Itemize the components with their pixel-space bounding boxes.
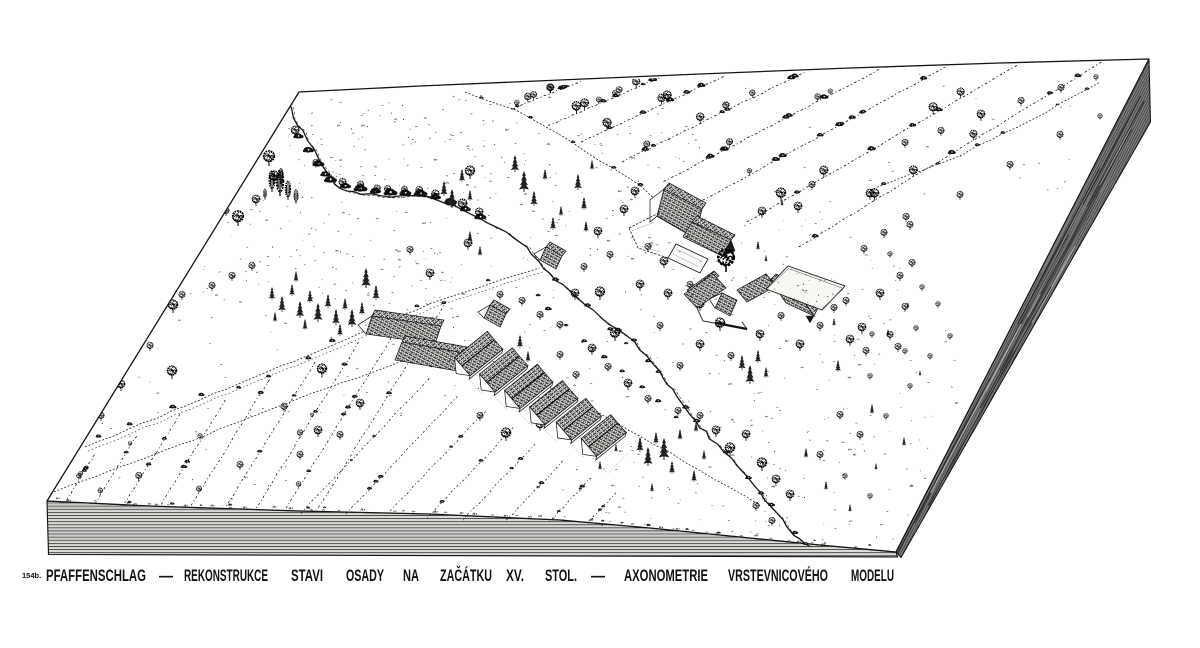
- svg-text:AXONOMETRIE: AXONOMETRIE: [624, 567, 708, 585]
- svg-text:MODELU: MODELU: [851, 567, 894, 585]
- svg-text:154b.: 154b.: [22, 571, 41, 580]
- svg-text:ZAČÁTKU: ZAČÁTKU: [440, 566, 492, 585]
- svg-text:VRSTEVNICOVÉHO: VRSTEVNICOVÉHO: [728, 566, 828, 585]
- svg-text:STOL.: STOL.: [545, 567, 577, 585]
- svg-text:STAVI: STAVI: [291, 567, 323, 585]
- svg-text:OSADY: OSADY: [346, 567, 384, 585]
- svg-text:—: —: [159, 567, 173, 585]
- svg-text:PFAFFENSCHLAG: PFAFFENSCHLAG: [46, 567, 146, 585]
- svg-text:NA: NA: [403, 567, 419, 585]
- svg-text:REKONSTRUKCE: REKONSTRUKCE: [184, 567, 268, 585]
- svg-text:—: —: [591, 567, 605, 585]
- svg-text:XV.: XV.: [506, 567, 524, 585]
